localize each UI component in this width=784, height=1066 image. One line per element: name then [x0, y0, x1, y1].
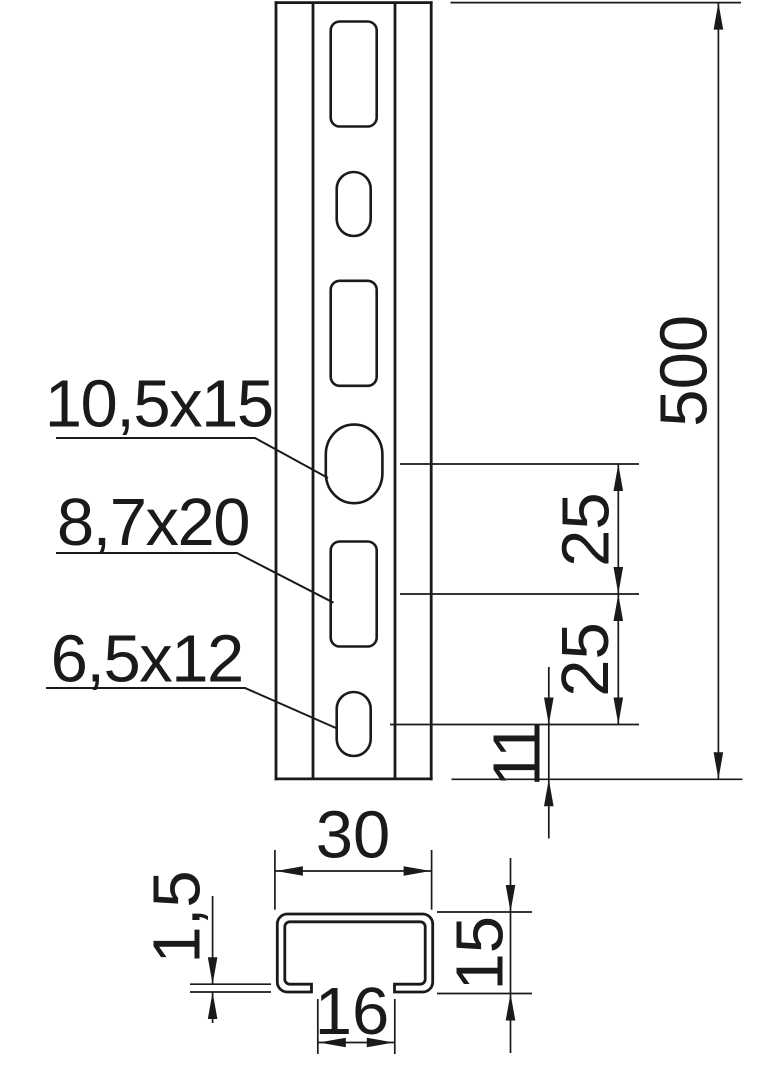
svg-text:15: 15: [443, 916, 518, 991]
svg-text:10,5x15: 10,5x15: [45, 367, 273, 442]
svg-text:1,5: 1,5: [140, 870, 215, 963]
svg-text:25: 25: [549, 492, 624, 567]
svg-text:30: 30: [316, 798, 391, 873]
svg-text:25: 25: [548, 622, 623, 697]
svg-text:8,7x20: 8,7x20: [57, 485, 249, 560]
svg-text:11: 11: [480, 721, 555, 787]
svg-text:16: 16: [315, 974, 390, 1049]
svg-text:500: 500: [647, 315, 722, 427]
svg-text:6,5x12: 6,5x12: [51, 621, 243, 696]
